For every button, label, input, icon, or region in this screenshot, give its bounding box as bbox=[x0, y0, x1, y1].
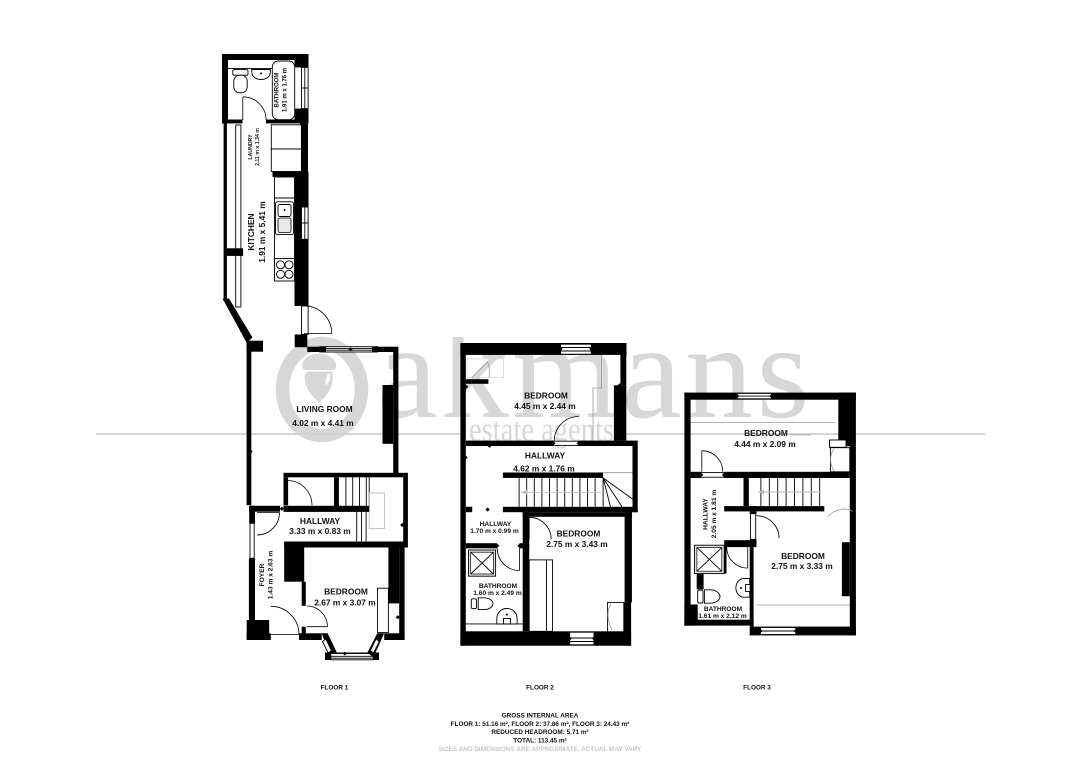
svg-text:BATHROOM: BATHROOM bbox=[275, 73, 281, 108]
svg-text:2.75 m x 3.43 m: 2.75 m x 3.43 m bbox=[546, 539, 607, 549]
svg-text:FLOOR 2: FLOOR 2 bbox=[526, 685, 554, 692]
svg-text:HALLWAY: HALLWAY bbox=[300, 516, 341, 526]
svg-text:4.45 m x 2.44 m: 4.45 m x 2.44 m bbox=[514, 401, 575, 411]
svg-text:BEDROOM: BEDROOM bbox=[324, 587, 368, 597]
svg-text:FLOOR 3: FLOOR 3 bbox=[743, 685, 771, 692]
svg-text:BEDROOM: BEDROOM bbox=[557, 529, 601, 539]
svg-text:4.44 m x 2.09 m: 4.44 m x 2.09 m bbox=[734, 439, 795, 449]
svg-text:BATHROOM: BATHROOM bbox=[704, 606, 743, 613]
svg-text:1.91 m x 1.76 m: 1.91 m x 1.76 m bbox=[283, 68, 289, 112]
svg-text:HALLWAY: HALLWAY bbox=[703, 498, 710, 530]
svg-text:1.91 m x 5.41 m: 1.91 m x 5.41 m bbox=[257, 201, 267, 262]
svg-text:GROSS INTERNAL AREA: GROSS INTERNAL AREA bbox=[502, 713, 579, 720]
svg-text:3.33 m x 0.83 m: 3.33 m x 0.83 m bbox=[289, 526, 350, 536]
svg-text:2.05 m x 1.81 m: 2.05 m x 1.81 m bbox=[711, 490, 718, 539]
svg-text:1.60 m x 2.49 m: 1.60 m x 2.49 m bbox=[473, 590, 522, 597]
svg-text:SIZES AND DIMENSIONS ARE APPRO: SIZES AND DIMENSIONS ARE APPROXIMATE, AC… bbox=[439, 746, 642, 753]
svg-text:1.61 m x 2.12 m: 1.61 m x 2.12 m bbox=[698, 613, 747, 620]
svg-text:KITCHEN: KITCHEN bbox=[246, 213, 256, 250]
svg-text:2.67 m x 3.07 m: 2.67 m x 3.07 m bbox=[314, 598, 375, 608]
svg-text:BEDROOM: BEDROOM bbox=[781, 551, 825, 561]
svg-text:4.02 m x 4.41 m: 4.02 m x 4.41 m bbox=[292, 418, 353, 428]
svg-text:LIVING ROOM: LIVING ROOM bbox=[296, 404, 352, 414]
svg-text:1.70 m x 0.99 m: 1.70 m x 0.99 m bbox=[470, 528, 519, 535]
svg-text:HALLWAY: HALLWAY bbox=[525, 451, 566, 461]
svg-text:2.11 m x 1.34 m: 2.11 m x 1.34 m bbox=[255, 128, 261, 166]
svg-text:BEDROOM: BEDROOM bbox=[744, 428, 788, 438]
svg-text:REDUCED HEADROOM: 5.71 m²: REDUCED HEADROOM: 5.71 m² bbox=[491, 729, 588, 736]
svg-text:2.75 m x 3.33 m: 2.75 m x 3.33 m bbox=[771, 561, 832, 571]
svg-text:FLOOR 1: FLOOR 1 bbox=[321, 685, 349, 692]
svg-text:BEDROOM: BEDROOM bbox=[524, 391, 568, 401]
svg-text:FOYER: FOYER bbox=[259, 563, 266, 586]
svg-text:TOTAL: 113.45 m²: TOTAL: 113.45 m² bbox=[513, 737, 566, 744]
svg-text:FLOOR 1: 51.16 m², FLOOR 2: 37: FLOOR 1: 51.16 m², FLOOR 2: 37.86 m², FL… bbox=[451, 721, 630, 728]
svg-text:LAUNDRY: LAUNDRY bbox=[248, 134, 254, 160]
svg-text:1.43 m x 2.63 m: 1.43 m x 2.63 m bbox=[268, 551, 275, 600]
svg-text:BATHROOM: BATHROOM bbox=[479, 583, 518, 590]
svg-text:4.62 m x 1.76 m: 4.62 m x 1.76 m bbox=[513, 464, 574, 474]
svg-text:HALLWAY: HALLWAY bbox=[480, 521, 512, 528]
